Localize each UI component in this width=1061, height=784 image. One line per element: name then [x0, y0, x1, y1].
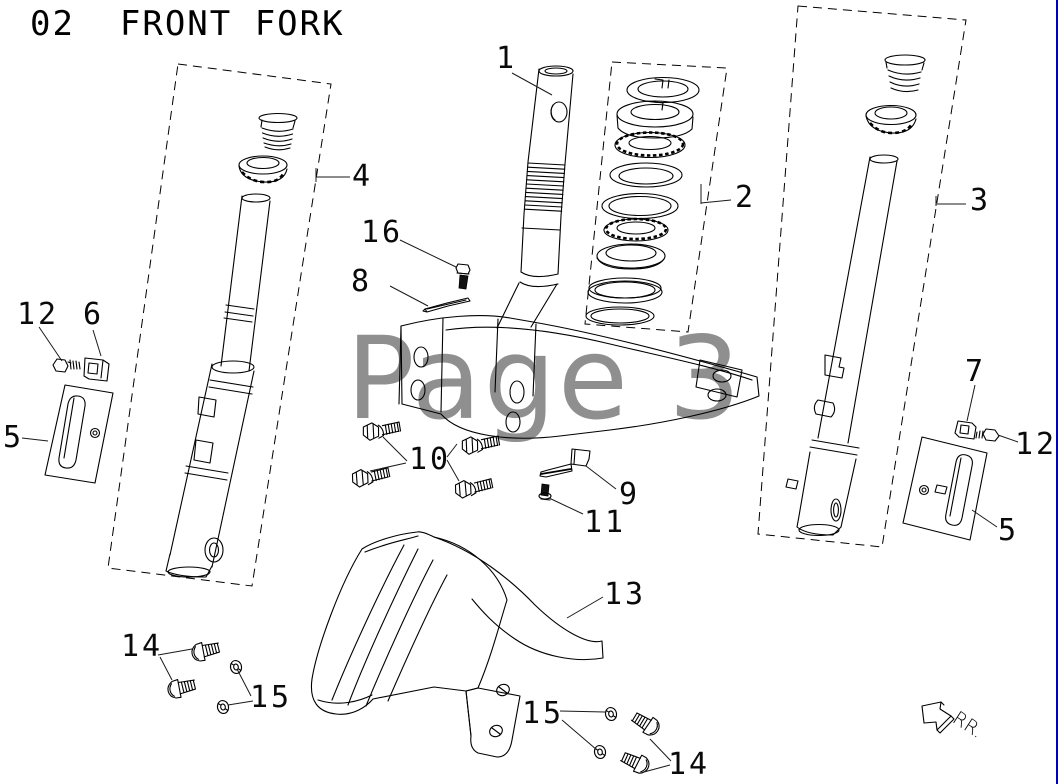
flat-stay-plate [423, 298, 470, 312]
rear-direction-arrow-icon [922, 702, 954, 733]
steering-bearing-stack [585, 62, 727, 332]
callout-1: 1 [496, 44, 517, 74]
right-fork-assembly [758, 6, 966, 547]
callout-12: 12 [1015, 430, 1057, 460]
fender-screws-left [166, 639, 222, 700]
exploded-parts-drawing [0, 0, 1061, 784]
callout-15: 15 [522, 699, 564, 729]
callout-8: 8 [351, 267, 372, 297]
callout-6: 6 [83, 300, 104, 330]
callout-15: 15 [250, 683, 292, 713]
callout-2: 2 [735, 183, 756, 213]
callout-7: 7 [965, 357, 986, 387]
fender-washers-left [216, 659, 242, 714]
lower-triple-clamp [399, 316, 759, 439]
callout-14: 14 [121, 632, 163, 662]
callout-14: 14 [668, 750, 710, 780]
callout-12: 12 [17, 300, 59, 330]
callout-11: 11 [584, 508, 626, 538]
right-edge-line [1056, 0, 1058, 784]
pinch-bolt [456, 264, 470, 289]
callout-10: 10 [409, 445, 451, 475]
cable-bracket [540, 449, 590, 477]
callout-3: 3 [970, 186, 991, 216]
callout-16: 16 [361, 218, 403, 248]
callout-4: 4 [352, 162, 373, 192]
callout-5: 5 [998, 516, 1019, 546]
left-reflector-group [45, 358, 113, 483]
callout-13: 13 [604, 580, 646, 610]
steering-stem [497, 66, 573, 328]
right-reflector-group [903, 421, 999, 540]
callout-5: 5 [3, 423, 24, 453]
left-fork-assembly [108, 64, 331, 586]
fender-screws-right [619, 709, 663, 776]
diagram-canvas: Page 3 [0, 0, 1061, 784]
fender-washers-right [593, 706, 617, 759]
